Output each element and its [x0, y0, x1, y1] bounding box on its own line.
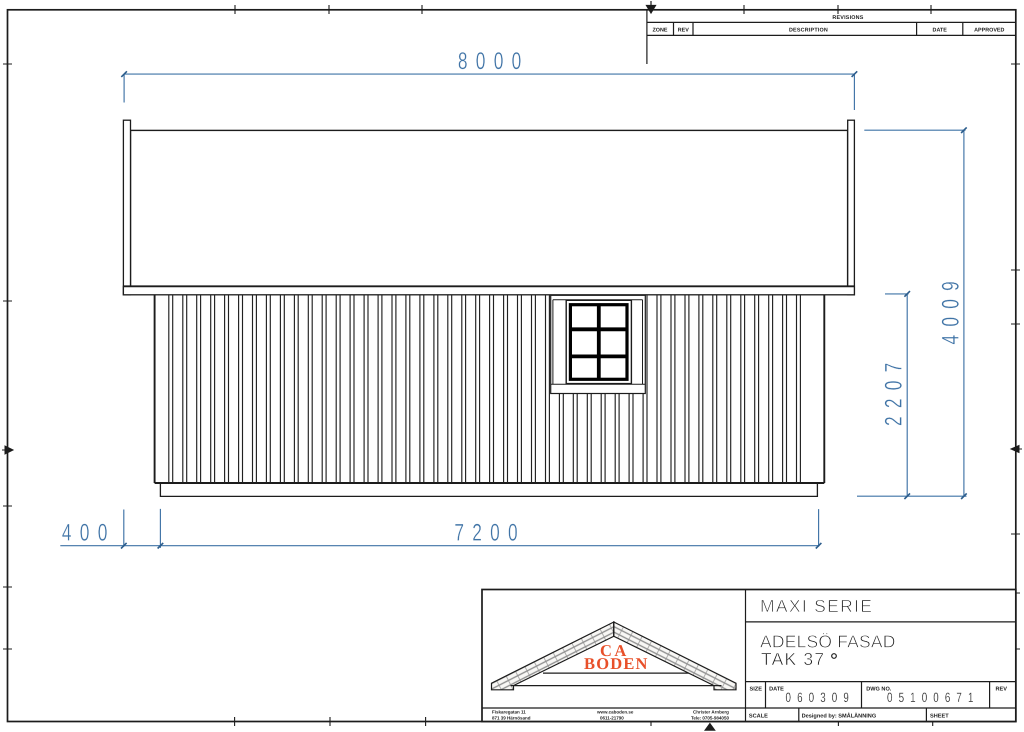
svg-text:2207: 2207	[881, 354, 908, 426]
svg-text:DATE: DATE	[769, 686, 784, 692]
svg-text:SCALE: SCALE	[749, 713, 768, 719]
svg-text:APPROVED: APPROVED	[974, 28, 1004, 34]
svg-text:TAK 37: TAK 37	[761, 649, 825, 669]
svg-text:0611-21790: 0611-21790	[600, 716, 624, 721]
svg-text:4009: 4009	[938, 273, 965, 345]
svg-text:REV: REV	[996, 686, 1008, 692]
svg-text:www.caboden.se: www.caboden.se	[596, 710, 634, 715]
svg-text:BODEN: BODEN	[584, 654, 649, 673]
svg-text:400: 400	[62, 520, 116, 547]
svg-text:060309: 060309	[786, 690, 855, 705]
svg-text:871 39 Härnösand: 871 39 Härnösand	[492, 716, 531, 721]
svg-text:8000: 8000	[458, 48, 530, 75]
svg-text:Tele: 0705-984050: Tele: 0705-984050	[691, 716, 729, 721]
svg-text:7200: 7200	[454, 520, 526, 547]
svg-text:SHEET: SHEET	[930, 713, 949, 719]
svg-text:ZONE: ZONE	[653, 28, 668, 34]
svg-text:DATE: DATE	[933, 28, 948, 34]
svg-text:MAXI SERIE: MAXI SERIE	[760, 596, 873, 616]
svg-text:Christer Arnberg: Christer Arnberg	[693, 710, 729, 715]
svg-text:REV: REV	[678, 28, 689, 34]
svg-text:REVISIONS: REVISIONS	[832, 15, 863, 21]
svg-text:Fiskaregatan 11: Fiskaregatan 11	[492, 710, 526, 715]
svg-text:05100671: 05100671	[887, 690, 980, 705]
svg-text:SIZE: SIZE	[750, 686, 763, 692]
svg-text:Designed by: SMÅLÄNNING: Designed by: SMÅLÄNNING	[802, 712, 877, 719]
svg-text:DESCRIPTION: DESCRIPTION	[789, 28, 828, 34]
